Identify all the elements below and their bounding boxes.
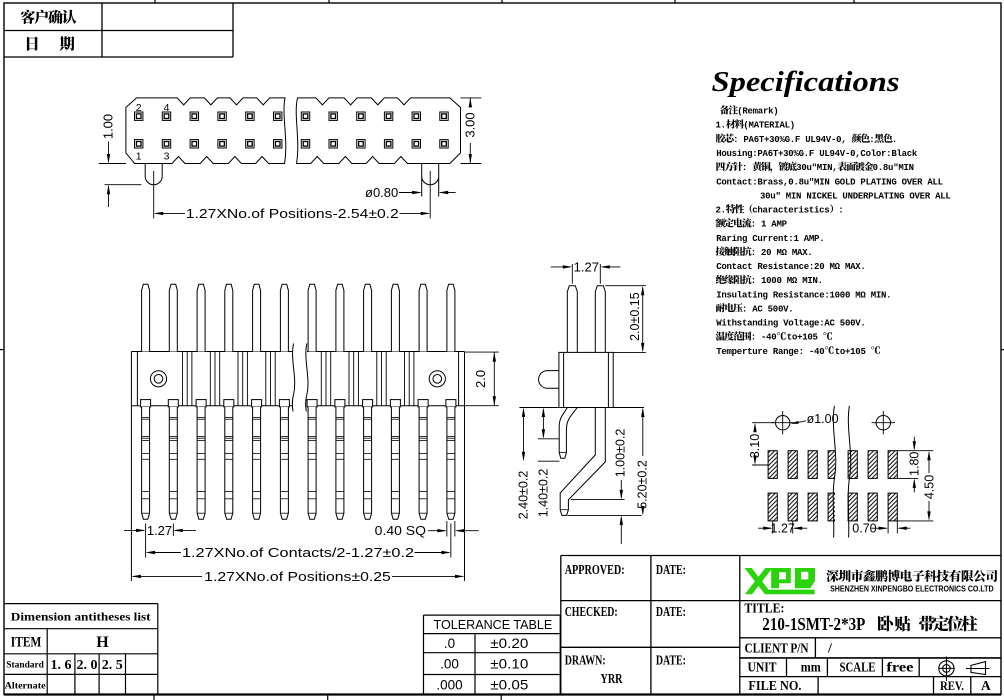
svg-text:Housing:PA6T+30%G.F UL94V-0,Co: Housing:PA6T+30%G.F UL94V-0,Color:Black (716, 149, 918, 159)
svg-text:1.40±0.2: 1.40±0.2 (536, 469, 550, 518)
svg-text:2.0: 2.0 (473, 370, 488, 388)
svg-text:.000: .000 (436, 677, 462, 692)
svg-text:Contact:Brass,0.8u"MIN GOLD PL: Contact:Brass,0.8u"MIN GOLD PLATING OVER… (716, 177, 943, 187)
svg-text:TOLERANCE TABLE: TOLERANCE TABLE (434, 618, 553, 632)
svg-text:3.00: 3.00 (462, 112, 477, 137)
svg-text:REV.: REV. (940, 678, 964, 693)
svg-text:1.27XNo.of Positions-2.54±0.2: 1.27XNo.of Positions-2.54±0.2 (186, 206, 399, 221)
svg-text:1.00: 1.00 (100, 114, 115, 139)
svg-text:: 1 AMP: : 1 AMP (751, 220, 788, 230)
svg-text:Dimension antitheses list: Dimension antitheses list (11, 609, 151, 623)
svg-text:H: H (96, 634, 109, 651)
svg-text:DATE:: DATE: (656, 605, 686, 620)
svg-text:UNIT: UNIT (748, 661, 778, 676)
svg-text:.00: .00 (440, 656, 459, 671)
svg-text:: PA6T+30%G.F UL94V-0,: : PA6T+30%G.F UL94V-0, (733, 135, 846, 145)
svg-text:2. 0: 2. 0 (77, 658, 98, 673)
svg-text:1.27XNo.of Positions±0.25: 1.27XNo.of Positions±0.25 (204, 569, 391, 584)
svg-text:FILE NO.: FILE NO. (748, 679, 801, 694)
svg-text:Alternate: Alternate (5, 681, 46, 691)
svg-text:1.27: 1.27 (771, 522, 795, 536)
svg-text:: -40: : -40 (751, 333, 777, 343)
svg-text:ø1.00: ø1.00 (807, 412, 839, 426)
svg-text:30u"MIN,: 30u"MIN, (796, 163, 837, 173)
svg-text::: : (838, 206, 843, 216)
svg-text:3.10: 3.10 (748, 434, 762, 458)
svg-text:: 20 MΩ MAX.: : 20 MΩ MAX. (751, 248, 813, 258)
svg-text:1.27XNo.of Contacts/2-1.27±0.2: 1.27XNo.of Contacts/2-1.27±0.2 (182, 545, 414, 560)
svg-text:2.: 2. (716, 206, 726, 216)
svg-text:5.20±0.2: 5.20±0.2 (636, 460, 650, 509)
svg-text:to+105: to+105 (787, 333, 818, 343)
svg-text:2. 5: 2. 5 (102, 658, 123, 673)
svg-text:30u" MIN NICKEL UNDERPLATING O: 30u" MIN NICKEL UNDERPLATING OVER ALL (760, 191, 951, 201)
svg-text:Specifications: Specifications (712, 66, 900, 98)
svg-text:: AC 500V.: : AC 500V. (742, 304, 794, 314)
svg-text:free: free (886, 661, 913, 676)
svg-text:1.27: 1.27 (147, 523, 172, 538)
svg-text:Temperture Range: -40: Temperture Range: -40 (716, 347, 824, 357)
svg-text:SHENZHEN XINPENGBO ELECTRONICS: SHENZHEN XINPENGBO ELECTRONICS CO.LTD (830, 585, 994, 594)
svg-text:Insulating Resistance:1000 MΩ: Insulating Resistance:1000 MΩ MIN. (716, 290, 891, 300)
svg-text:±0.05: ±0.05 (490, 677, 528, 692)
svg-text:1. 6: 1. 6 (51, 658, 72, 673)
svg-text:characteristics: characteristics (752, 206, 829, 216)
svg-text::: : (742, 163, 747, 173)
svg-text:to+105: to+105 (835, 347, 866, 357)
svg-text:DATE:: DATE: (656, 563, 686, 578)
svg-text:.: . (892, 135, 897, 145)
svg-text:Standard: Standard (6, 661, 44, 671)
svg-text:Contact Resistance:20 MΩ MAX.: Contact Resistance:20 MΩ MAX. (716, 262, 865, 272)
svg-text:0.40 SQ: 0.40 SQ (375, 523, 426, 538)
svg-text:YRR: YRR (601, 672, 624, 687)
svg-text:1: 1 (136, 151, 142, 163)
svg-text:210-1SMT-2*3P: 210-1SMT-2*3P (762, 614, 865, 634)
svg-text:(Remark): (Remark) (737, 107, 778, 117)
svg-text:1.80: 1.80 (908, 452, 922, 476)
svg-text:CLIENT P/N: CLIENT P/N (745, 641, 809, 656)
svg-text:4.50: 4.50 (922, 475, 936, 499)
svg-text:: 1000 MΩ MIN.: : 1000 MΩ MIN. (751, 276, 823, 286)
svg-text:DATE:: DATE: (656, 653, 686, 668)
svg-text:±0.20: ±0.20 (490, 636, 528, 651)
svg-text:3: 3 (164, 151, 170, 163)
svg-text:2.40±0.2: 2.40±0.2 (516, 471, 530, 520)
svg-text:0.8u"MIN: 0.8u"MIN (873, 163, 914, 173)
svg-text:Raring Current:1 AMP.: Raring Current:1 AMP. (716, 234, 824, 244)
svg-text:±0.10: ±0.10 (490, 656, 528, 671)
svg-text:.0: .0 (444, 636, 455, 651)
svg-text:ITEM: ITEM (11, 634, 42, 650)
svg-text:SCALE: SCALE (840, 661, 876, 676)
svg-text:ø0.80: ø0.80 (365, 185, 398, 200)
svg-text:DRAWN:: DRAWN: (565, 653, 606, 668)
svg-text:A: A (981, 678, 991, 693)
svg-text:(MATERIAL): (MATERIAL) (743, 121, 795, 131)
svg-text:Withstanding Voltage:AC 500V.: Withstanding Voltage:AC 500V. (716, 319, 865, 329)
svg-text::: : (869, 135, 874, 145)
svg-text:1.27: 1.27 (574, 259, 599, 274)
svg-text:4: 4 (164, 102, 170, 114)
svg-text:mm: mm (801, 661, 821, 676)
svg-text:CHECKED:: CHECKED: (565, 605, 618, 620)
svg-text:2.0±0.15: 2.0±0.15 (628, 292, 642, 341)
svg-text:APPROVED:: APPROVED: (565, 563, 625, 578)
svg-text:2: 2 (136, 102, 142, 114)
svg-text:1.: 1. (716, 121, 726, 131)
svg-text:1.00±0.2: 1.00±0.2 (614, 429, 628, 478)
